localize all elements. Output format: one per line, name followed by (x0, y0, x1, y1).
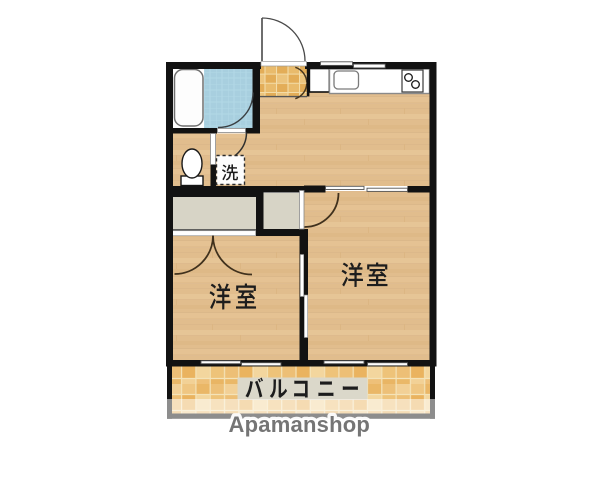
svg-text:Apamanshop: Apamanshop (229, 412, 371, 437)
